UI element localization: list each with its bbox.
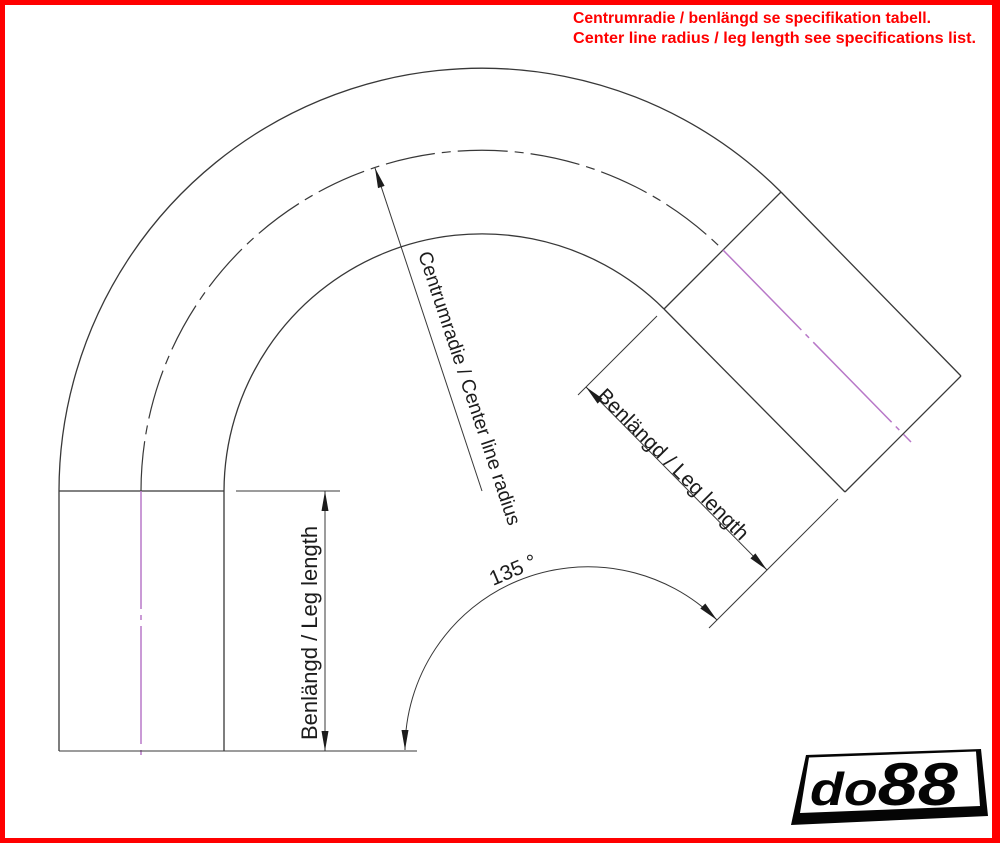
drawing-sheet: Centrumradie / Center line radius Benlän… (0, 0, 1000, 843)
elbow-diagram: Centrumradie / Center line radius Benlän… (0, 0, 1000, 843)
sheet-background (0, 0, 1000, 843)
left-leg-length-label: Benlängd / Leg length (297, 526, 322, 740)
note-line-1: Centrumradie / benlängd se specifikation… (573, 10, 931, 27)
note-line-2: Center line radius / leg length see spec… (573, 30, 976, 47)
do88-logo: do88 (791, 749, 988, 825)
logo-text-88: 88 (878, 751, 959, 818)
logo-text-do: do (810, 763, 878, 815)
